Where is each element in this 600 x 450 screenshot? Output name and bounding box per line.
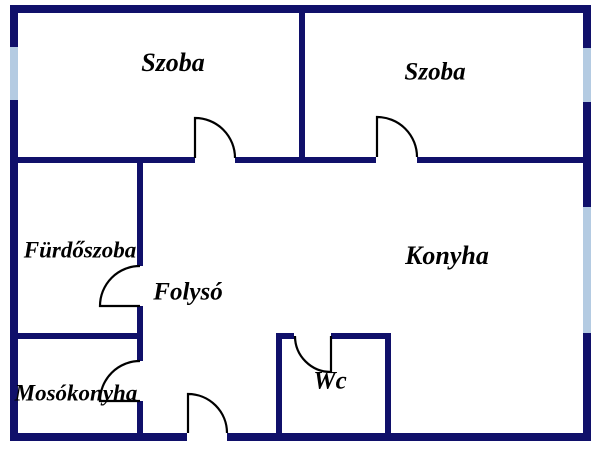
room-label-konyha: Konyha xyxy=(405,243,489,269)
room-label-furdoszoba: Fürdőszoba xyxy=(24,239,136,262)
room-label-szoba-left: Szoba xyxy=(141,50,205,76)
entrance-door xyxy=(188,394,227,433)
room-label-folyso: Folysó xyxy=(153,280,222,305)
room-label-mosokonyha: Mosókonyha xyxy=(15,382,138,405)
furdoszoba-door xyxy=(100,266,140,306)
room-label-wc: Wc xyxy=(313,369,346,394)
floor-plan: Szoba Szoba Fürdőszoba Folysó Konyha Mos… xyxy=(0,0,600,450)
szoba-right-door xyxy=(377,117,417,157)
room-label-szoba-right: Szoba xyxy=(404,60,465,85)
szoba-left-door xyxy=(195,118,235,158)
